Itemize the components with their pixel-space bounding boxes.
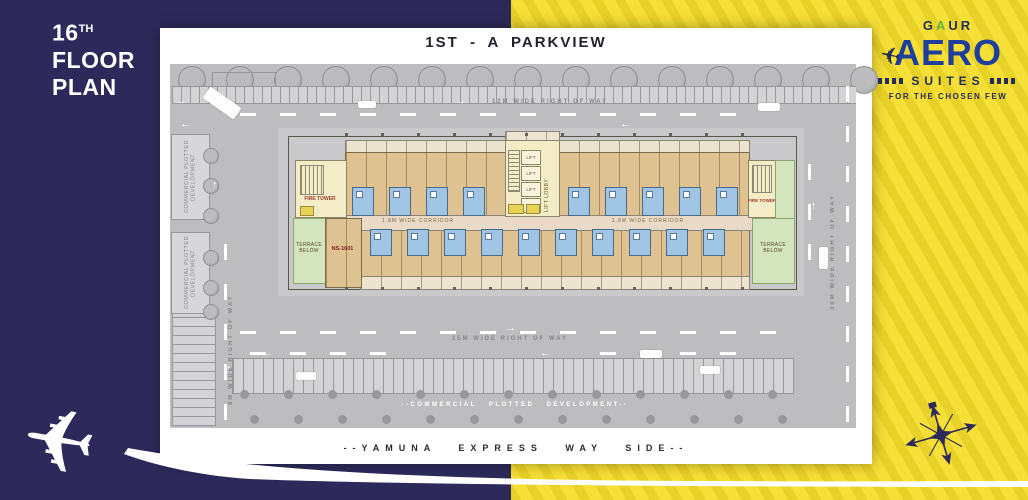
- runway-dashes-right: [990, 78, 1018, 84]
- gaur-wordmark: GAUR: [878, 18, 1018, 33]
- site-plan: [170, 64, 856, 428]
- floor-word: FLOOR: [52, 47, 135, 74]
- floor-ordinal: TH: [79, 23, 94, 35]
- brand-tagline: FOR THE CHOSEN FEW: [878, 92, 1018, 101]
- gaur-letter-a: A: [936, 18, 948, 33]
- suites-wordmark: SUITES: [911, 74, 984, 88]
- yamuna-expressway-label: --YAMUNA EXPRESS WAY SIDE--: [160, 443, 872, 453]
- gaur-letter-g: G: [923, 18, 936, 33]
- floor-plan-heading: 16TH FLOOR PLAN: [52, 16, 135, 101]
- gaur-letters-ur: UR: [948, 18, 973, 33]
- runway-dashes-left: [878, 78, 906, 84]
- compass-rose-icon: [898, 400, 984, 470]
- plan-word: PLAN: [52, 74, 135, 101]
- airplane-icon: ✈: [15, 392, 103, 491]
- page-title: 1ST - A PARKVIEW: [160, 34, 872, 51]
- floor-number: 16: [52, 20, 79, 46]
